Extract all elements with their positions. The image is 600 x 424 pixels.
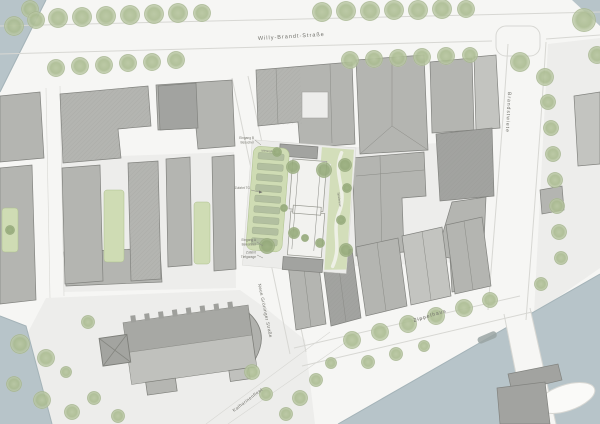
annotation-garage: Zufahrt [246,251,256,255]
tree [309,373,323,387]
tree [482,292,498,308]
annotation-access-tg: Zufahrt TG [235,186,251,190]
traffic-island-junction [496,26,540,56]
tree [288,227,300,239]
tree [547,172,563,188]
tree [338,158,352,172]
tree [365,50,383,68]
tree [4,16,24,36]
tree [545,146,561,162]
tree [572,8,596,32]
courtyard-green-strip [104,190,124,262]
tree [279,407,293,421]
tree [408,0,428,20]
garage-entrance-structure [282,256,323,272]
building [166,157,192,267]
tree [534,277,548,291]
tree [60,366,72,378]
courtyard-garden: Mietergärten Spielwiese [242,140,356,275]
tree [457,0,475,18]
tree [71,57,89,75]
building [574,92,600,166]
tree [336,215,346,225]
tree [244,364,260,380]
tree [554,251,568,265]
tree [549,198,565,214]
tree [144,4,164,24]
tree [87,391,101,405]
tree [437,47,455,65]
tree [167,51,185,69]
tree [312,2,332,22]
tree [259,238,275,254]
tree [48,8,68,28]
tree [540,94,556,110]
tree [143,53,161,71]
tree [301,234,309,242]
building [430,58,474,133]
tree [360,1,380,21]
building-roof [158,83,198,130]
tree [462,47,478,63]
building [212,155,236,271]
tree [389,49,407,67]
courtyard-green-strip [194,202,210,264]
tree [33,391,51,409]
building [497,382,550,424]
tree [551,224,567,240]
tree [27,11,45,29]
tree [96,6,116,26]
annotation-entrance-b-line2: Besucher [241,141,255,145]
tree [510,52,530,72]
annotation-garage-line2: Tiefgarage [241,255,256,259]
tree [342,183,352,193]
tree [543,120,559,136]
site-plan: Mietergärten Spielwiese Willy-Brandt-Str… [0,0,600,424]
tree [280,204,288,212]
tree [413,48,431,66]
building [62,165,103,284]
tree [343,331,361,349]
tree [81,315,95,329]
tree [384,0,404,20]
annotation-entrance-b: Eingang B [239,136,254,140]
tree [341,51,359,69]
tree [315,238,325,248]
tree [536,68,554,86]
tree [5,225,15,235]
tree [37,349,55,367]
tree [371,323,389,341]
tree [292,390,308,406]
tree [455,299,473,317]
tree [336,1,356,21]
inner-courtyard [302,92,328,118]
tree [325,357,337,369]
tree [111,409,125,423]
tree [286,160,300,174]
building [474,55,500,130]
tree [10,334,30,354]
annotation-entrance-a: Eingang A [241,238,256,242]
tree [168,3,188,23]
tree [95,56,113,74]
tree [120,5,140,25]
annotation-entrance-a-line2: Bewohner [242,243,257,247]
tree [119,54,137,72]
tree [47,59,65,77]
tree [64,404,80,420]
tree [72,7,92,27]
tree [193,4,211,22]
tree [6,376,22,392]
tree [339,243,353,257]
tree [389,347,403,361]
tree [361,355,375,369]
tree [272,147,282,157]
tree [316,162,332,178]
site-plan-svg: Mietergärten Spielwiese Willy-Brandt-Str… [0,0,600,424]
building [0,92,44,162]
tree [418,340,430,352]
